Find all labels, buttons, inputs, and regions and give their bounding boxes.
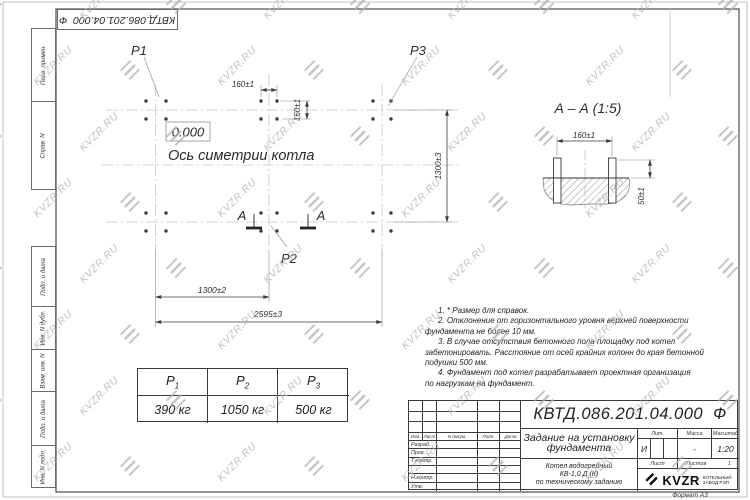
foundation-plan: Р1 Р3 Р2 0.000 Ось симетрии котла 160±1 … xyxy=(102,43,462,327)
note-line: подушки 500 мм. xyxy=(425,358,743,368)
frame-cell-inv-podl: Инв. N подл. xyxy=(31,445,56,488)
label-p3: Р3 xyxy=(410,43,427,58)
label-p2: Р2 xyxy=(281,251,298,266)
section-dim-50: 50±1 xyxy=(637,187,646,205)
anchor-bolt-right xyxy=(609,158,617,203)
section-cut-marks xyxy=(246,214,316,228)
note-line: 3. В случае отсутствия бетонного пола пл… xyxy=(425,337,743,347)
amendment-grid xyxy=(409,401,520,433)
company-logo-cell: KVZR КОТЕЛЬНЫЙ ЗАВОД РЭП xyxy=(638,469,739,491)
frame-strip-upper: Перв. примен. Справ. N xyxy=(31,29,56,190)
axis-label: Ось симетрии котла xyxy=(168,148,314,164)
anchor-bolt-dots xyxy=(144,99,392,232)
kvzr-stripes-icon xyxy=(645,473,659,487)
frame-strip-lower: Подп. и дата Инв. N дубл. Взам. инв. N П… xyxy=(31,247,56,488)
section-a-a-view: А – А (1:5) 160±1 50±1 xyxy=(543,100,655,208)
mass-value: - xyxy=(678,439,712,459)
drawing-sheet: Р1 Р3 Р2 0.000 Ось симетрии котла 160±1 … xyxy=(0,0,750,500)
lit-mass-scale-headers: Лит. Масса Масштаб xyxy=(638,429,739,439)
dim-1300-bottom: 1300±2 xyxy=(198,285,227,295)
frame-cell-podp-data-2: Подп. и дата xyxy=(31,391,56,446)
frame-cell-vzam-inv: Взам. инв. N xyxy=(31,349,56,392)
frame-cell-podp-data-1: Подп. и дата xyxy=(31,246,56,307)
load-table-header-p2: Р2 xyxy=(208,369,278,396)
note-line: 1. * Размер для справок. xyxy=(425,306,743,316)
top-designation-text: КВТД.086.201.04.000 Ф xyxy=(59,14,175,26)
note-line: 2. Отклонение от горизонтального уровня … xyxy=(425,316,743,326)
frame-cell-inv-dubl: Инв. N дубл. xyxy=(31,306,56,350)
section-letter-right: А xyxy=(316,208,326,223)
title-block-left: Изм. Лист N докум. Подп. Дата Разраб. Пр… xyxy=(409,401,521,491)
lit-mass-scale-values: И - 1:20 xyxy=(638,439,739,459)
frame-cell-sprav-n: Справ. N xyxy=(31,101,56,190)
signature-rows: Разраб. Пров. Т.контр. Н.контр. Утв. xyxy=(409,441,520,491)
section-letter-left: А xyxy=(237,208,247,223)
note-line: фундамента не более 10 мм. xyxy=(425,327,743,337)
label-p1: Р1 xyxy=(131,43,147,58)
document-designation: КВТД.086.201.04.000Ф xyxy=(521,401,739,429)
scale-value: 1:20 xyxy=(712,439,739,459)
load-table-header-p1: Р1 xyxy=(138,369,208,396)
technical-notes: 1. * Размер для справок. 2. Отклонение о… xyxy=(425,306,743,389)
note-line: 4. Фундамент под котел разрабатывает про… xyxy=(425,368,743,378)
anchor-bolt-left xyxy=(554,158,562,203)
litera-value: И xyxy=(638,439,651,459)
frame-cell-perv-primen: Перв. примен. xyxy=(31,28,56,102)
product-description: Котел водогрейный КВ-1,0 Д (К) по технич… xyxy=(521,459,638,491)
load-table: Р1 Р2 Р3 390 кг 1050 кг 500 кг xyxy=(137,368,348,422)
note-line: забетонировать. Расстояние от осей крайн… xyxy=(425,348,743,358)
dim-2595: 2595±3 xyxy=(253,309,283,319)
note-line: по нагрузкам на фундамент. xyxy=(425,379,743,389)
document-title: Задание на установку фундамента xyxy=(521,429,638,459)
load-table-header-p3: Р3 xyxy=(278,369,349,396)
top-designation-box: КВТД.086.201.04.000 Ф xyxy=(57,9,178,30)
section-title: А – А (1:5) xyxy=(554,100,622,116)
sheet-row: Лист Листов1 xyxy=(638,459,739,469)
sheets-count: Листов1 xyxy=(678,459,739,469)
kvzr-logo-text: KVZR xyxy=(662,473,699,488)
load-value-p1: 390 кг xyxy=(138,396,208,423)
format-label: Формат А3 xyxy=(645,492,735,499)
dim-160-top: 160±1 xyxy=(232,80,254,89)
load-value-p3: 500 кг xyxy=(278,396,349,423)
dim-1300-right: 1300±3 xyxy=(434,152,443,179)
title-block: Изм. Лист N докум. Подп. Дата Разраб. Пр… xyxy=(408,400,738,490)
load-value-p2: 1050 кг xyxy=(208,396,278,423)
dim-160-side: 160±1 xyxy=(293,99,302,121)
elevation-value: 0.000 xyxy=(172,125,205,140)
sheet-label: Лист xyxy=(638,459,678,469)
section-dim-160: 160±1 xyxy=(573,131,595,140)
change-header-row: Изм. Лист N докум. Подп. Дата xyxy=(409,433,520,441)
kvzr-logo-caption: КОТЕЛЬНЫЙ ЗАВОД РЭП xyxy=(703,475,732,485)
